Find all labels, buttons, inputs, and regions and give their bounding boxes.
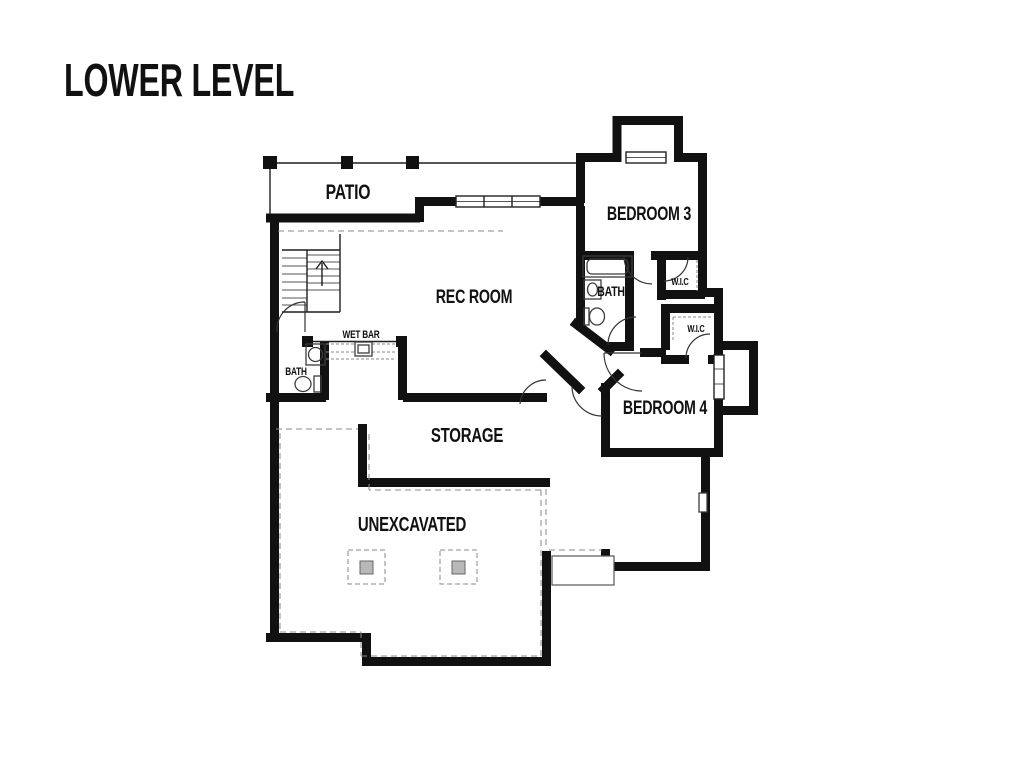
wet-bar-counter [326, 344, 396, 359]
wall-post-icon [302, 336, 313, 347]
label-wic-lower: W.I.C [687, 323, 705, 334]
label-wic-upper: W.I.C [671, 276, 689, 287]
label-bedroom4: BEDROOM 4 [623, 397, 708, 418]
floor-plan-drawing: LOWER LEVEL [0, 0, 1024, 768]
diagonal-wall [546, 356, 579, 388]
wic-lower-door [686, 334, 710, 358]
label-bedroom3: BEDROOM 3 [607, 203, 691, 224]
toilet-tank [314, 376, 321, 392]
diagonal-wall [576, 324, 610, 350]
floor-plan-page: LOWER LEVEL [0, 0, 1024, 768]
page-title: LOWER LEVEL [64, 55, 294, 106]
bar-sink-basin [358, 345, 369, 353]
label-wet-bar: WET BAR [343, 329, 380, 341]
post-icon [360, 561, 373, 574]
toilet [590, 308, 605, 325]
toilet [295, 377, 311, 392]
bath-lower-door [277, 302, 305, 332]
page-title-text: LOWER LEVEL [64, 55, 294, 106]
rec-room-window [456, 196, 540, 207]
utility-panel [699, 493, 707, 512]
label-rec-room: REC ROOM [436, 286, 513, 307]
post-icon [452, 561, 465, 574]
label-bathroom3: BATH [597, 284, 625, 300]
label-storage: STORAGE [431, 424, 504, 447]
patio-post-icon [263, 156, 277, 169]
bathtub-basin [587, 259, 628, 274]
sink [588, 283, 598, 296]
patio-post-icon [406, 156, 419, 169]
label-unexcavated: UNEXCAVATED [358, 513, 467, 536]
unexcavated-footing [280, 433, 541, 656]
window-well [552, 556, 614, 585]
label-bath-lower: BATH [285, 366, 307, 378]
wall-post-icon [396, 336, 407, 347]
diagonal-wall [604, 375, 618, 389]
structural-posts [348, 550, 477, 584]
bedroom4-window [714, 355, 724, 399]
staircase [282, 234, 340, 312]
label-patio: PATIO [326, 180, 371, 204]
patio-post-icon [341, 156, 353, 169]
bedroom3-window [626, 152, 666, 163]
